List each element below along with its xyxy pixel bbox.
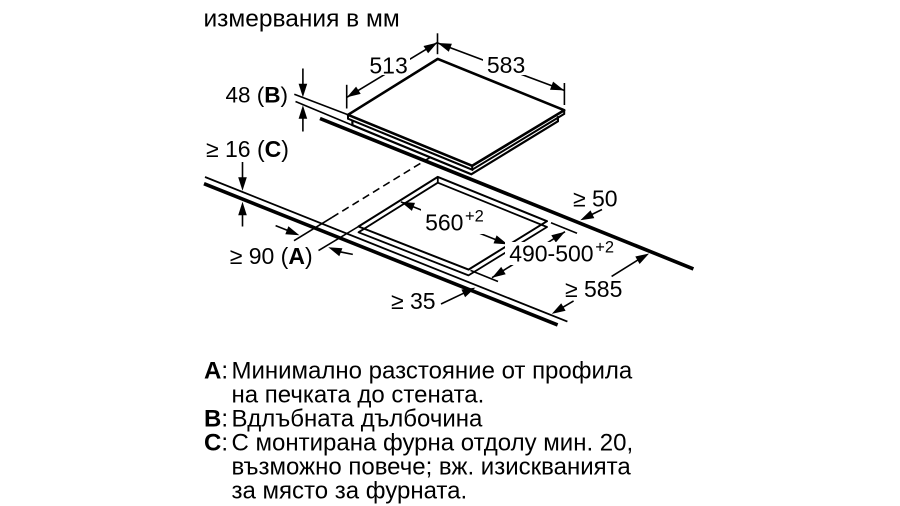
svg-text:≥ 16 (C): ≥ 16 (C) (206, 136, 289, 162)
svg-text:В: Вдлъбната дълбочина: В: Вдлъбната дълбочина (204, 406, 483, 433)
svg-text:за място за фурната.: за място за фурната. (232, 478, 468, 505)
svg-text:измервания в мм: измервания в мм (204, 6, 400, 33)
svg-text:48 (B): 48 (B) (226, 83, 289, 108)
svg-text:≥ 50: ≥ 50 (573, 186, 618, 212)
svg-text:513: 513 (369, 52, 407, 78)
svg-text:490-500: 490-500 (509, 241, 593, 267)
svg-text:на печката до стената.: на печката до стената. (232, 382, 485, 409)
svg-text:А: Минимално разстояние от про: А: Минимално разстояние от профила (204, 358, 633, 385)
svg-text:+2: +2 (465, 208, 484, 226)
svg-text:≥ 90 (A): ≥ 90 (A) (230, 243, 313, 269)
svg-text:≥ 35: ≥ 35 (391, 288, 436, 314)
svg-text:≥ 585: ≥ 585 (565, 276, 622, 302)
svg-text:С: С монтирана фурна отдолу ми: С: С монтирана фурна отдолу мин. 20, (204, 430, 633, 457)
svg-text:+2: +2 (595, 239, 614, 257)
svg-text:583: 583 (487, 52, 525, 78)
svg-text:560: 560 (425, 210, 463, 236)
svg-text:възможно повече; вж. изисквани: възможно повече; вж. изискванията (232, 454, 632, 481)
